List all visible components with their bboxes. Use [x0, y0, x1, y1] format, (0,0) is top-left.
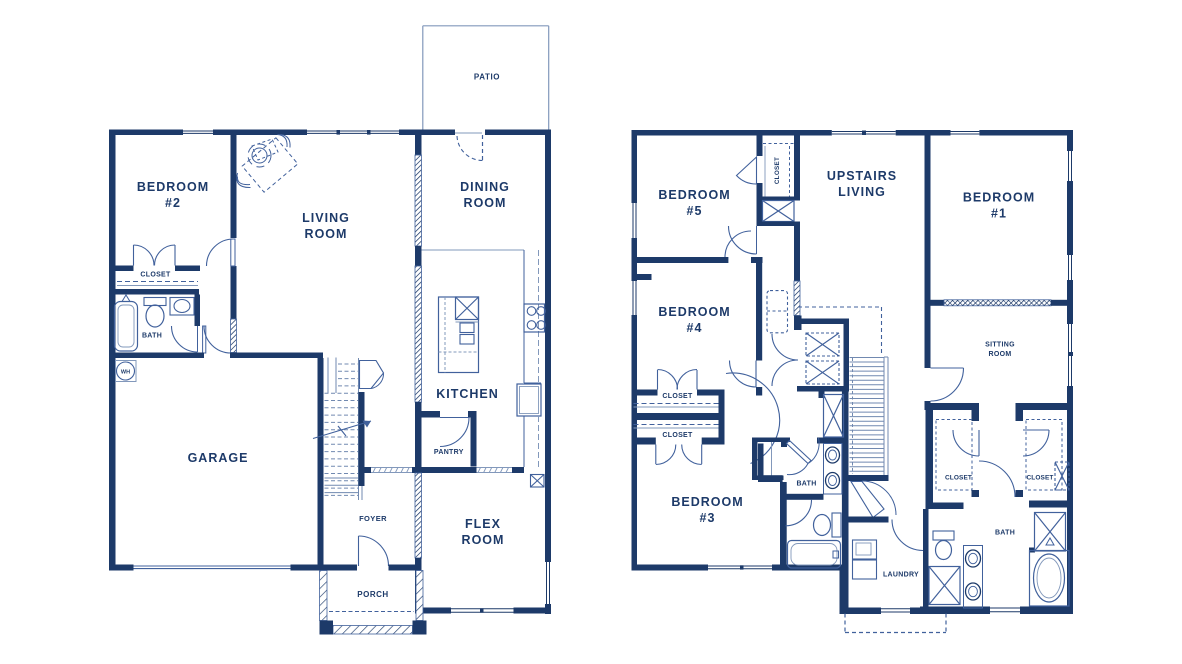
svg-text:BEDROOM: BEDROOM	[963, 191, 1035, 205]
svg-text:ROOM: ROOM	[462, 533, 505, 547]
svg-text:BATH: BATH	[995, 530, 1015, 537]
svg-text:LIVING: LIVING	[302, 211, 350, 225]
svg-text:PORCH: PORCH	[357, 590, 388, 599]
svg-text:DINING: DINING	[460, 180, 510, 194]
svg-text:#3: #3	[700, 511, 716, 525]
svg-text:CLOSET: CLOSET	[140, 272, 171, 279]
svg-text:#2: #2	[165, 196, 181, 210]
svg-text:CLOSET: CLOSET	[945, 475, 972, 482]
svg-text:CLOSET: CLOSET	[774, 157, 781, 184]
svg-text:SITTING: SITTING	[985, 342, 1015, 349]
svg-text:FLEX: FLEX	[465, 517, 501, 531]
svg-text:ROOM: ROOM	[989, 351, 1012, 358]
svg-text:ROOM: ROOM	[464, 196, 507, 210]
svg-text:BEDROOM: BEDROOM	[671, 495, 743, 509]
svg-text:BEDROOM: BEDROOM	[137, 180, 209, 194]
svg-text:WH: WH	[121, 369, 130, 375]
svg-text:#5: #5	[687, 204, 703, 218]
svg-text:UPSTAIRS: UPSTAIRS	[827, 169, 897, 183]
svg-text:GARAGE: GARAGE	[188, 451, 249, 465]
svg-text:FOYER: FOYER	[359, 514, 387, 523]
svg-text:CLOSET: CLOSET	[1027, 475, 1054, 482]
svg-text:#4: #4	[687, 321, 703, 335]
svg-text:BATH: BATH	[142, 333, 162, 340]
svg-text:BEDROOM: BEDROOM	[658, 305, 730, 319]
svg-text:LIVING: LIVING	[838, 185, 886, 199]
svg-text:BEDROOM: BEDROOM	[658, 188, 730, 202]
svg-text:LAUNDRY: LAUNDRY	[883, 572, 919, 579]
svg-text:ROOM: ROOM	[305, 227, 348, 241]
svg-text:CLOSET: CLOSET	[662, 432, 693, 439]
svg-text:CLOSET: CLOSET	[662, 393, 693, 400]
svg-text:KITCHEN: KITCHEN	[436, 387, 499, 401]
svg-text:PANTRY: PANTRY	[434, 449, 464, 456]
svg-text:BATH: BATH	[796, 481, 816, 488]
svg-text:PATIO: PATIO	[474, 73, 500, 82]
svg-text:#1: #1	[991, 207, 1007, 221]
